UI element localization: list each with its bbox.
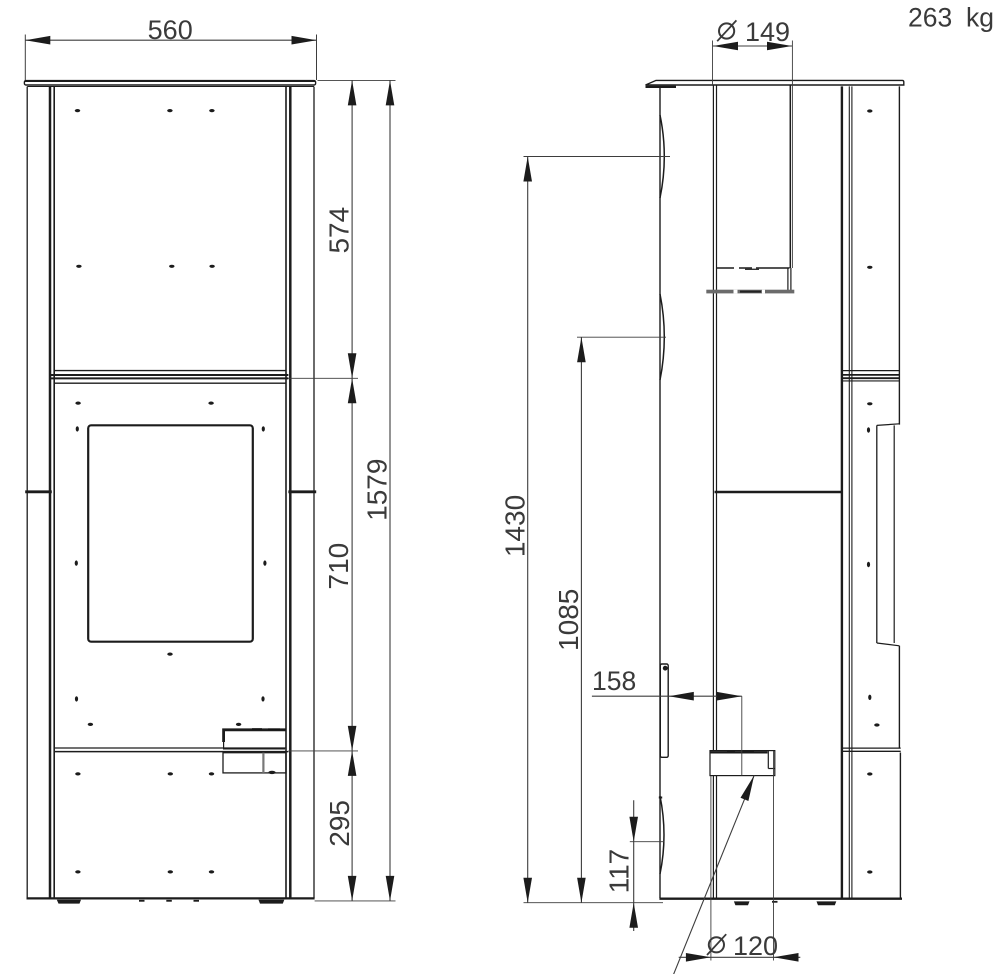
svg-text:1430: 1430 bbox=[499, 495, 530, 557]
svg-text:263: 263 bbox=[908, 3, 952, 33]
svg-text:120: 120 bbox=[733, 931, 778, 961]
svg-text:117: 117 bbox=[604, 849, 635, 894]
svg-text:1085: 1085 bbox=[553, 589, 584, 651]
svg-text:560: 560 bbox=[148, 15, 193, 45]
svg-text:295: 295 bbox=[324, 800, 355, 847]
svg-text:149: 149 bbox=[745, 17, 790, 47]
svg-text:574: 574 bbox=[323, 207, 354, 254]
svg-text:158: 158 bbox=[592, 666, 636, 696]
svg-text:kg: kg bbox=[966, 3, 994, 33]
svg-text:710: 710 bbox=[323, 543, 354, 590]
svg-text:1579: 1579 bbox=[361, 459, 392, 521]
